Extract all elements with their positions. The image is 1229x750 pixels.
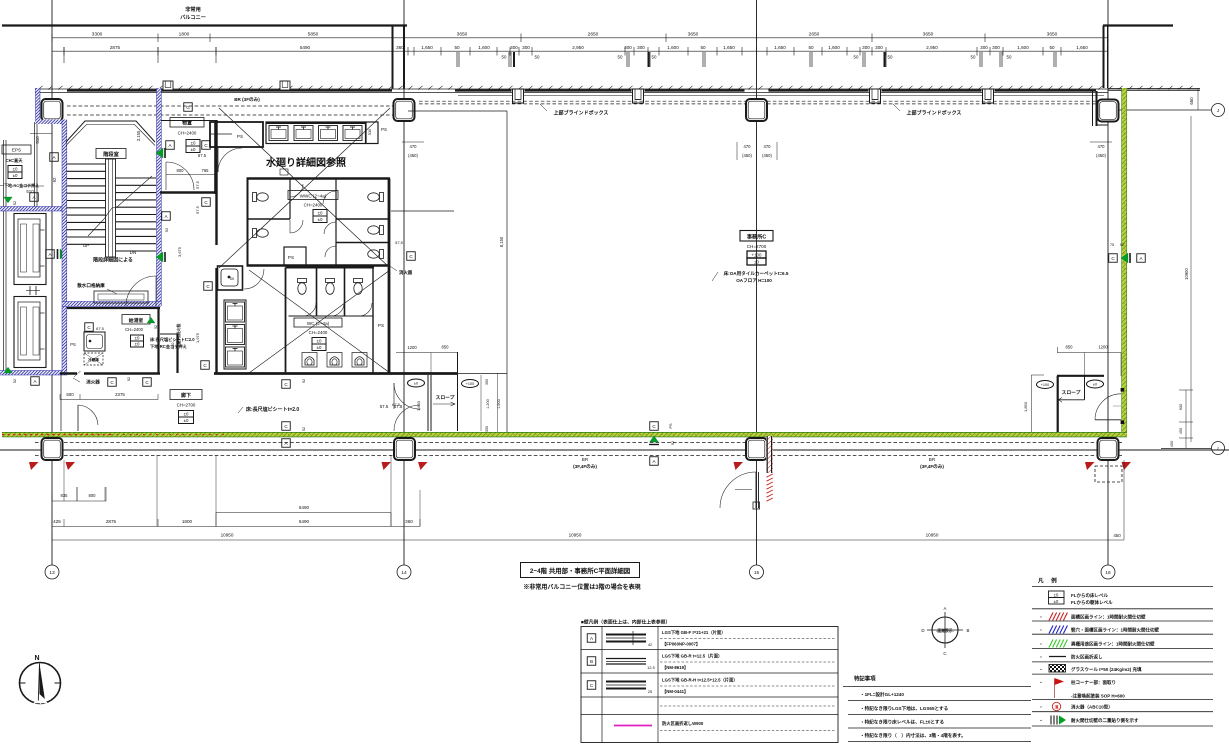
svg-text:(450): (450) — [742, 153, 752, 158]
svg-text:・: ・ — [1039, 655, 1044, 660]
svg-text:・特記なき限りLGS下地は、LGS65とする: ・特記なき限りLGS下地は、LGS65とする — [860, 705, 949, 712]
svg-text:50: 50 — [971, 55, 976, 60]
svg-text:+100: +100 — [466, 382, 475, 386]
svg-text:57.5: 57.5 — [195, 180, 200, 189]
svg-text:LGS下地 GB-F t=21+21（片面）: LGS下地 GB-F t=21+21（片面） — [662, 629, 726, 636]
svg-text:上部ブラインドボックス: 上部ブラインドボックス — [554, 110, 609, 117]
svg-text:92: 92 — [52, 177, 57, 182]
svg-text:+100: +100 — [1041, 383, 1050, 387]
svg-text:±0: ±0 — [135, 335, 140, 340]
svg-text:75: 75 — [1110, 243, 1114, 247]
svg-text:B: B — [590, 659, 593, 664]
svg-text:425: 425 — [53, 519, 61, 524]
svg-text:92: 92 — [302, 379, 306, 383]
svg-text:異種用途区画ライン：1時間耐火間仕切壁: 異種用途区画ライン：1時間耐火間仕切壁 — [1071, 641, 1155, 648]
svg-text:450: 450 — [1169, 440, 1174, 447]
svg-text:・特記なき限り床レベルは、FL±0とする: ・特記なき限り床レベルは、FL±0とする — [860, 719, 944, 726]
svg-text:350: 350 — [485, 379, 489, 385]
svg-text:-注意喚起塗装 SOP H=600: -注意喚起塗装 SOP H=600 — [1071, 693, 1125, 700]
svg-text:5490: 5490 — [299, 519, 310, 524]
svg-text:±0: ±0 — [317, 345, 322, 350]
svg-text:散水口格納庫: 散水口格納庫 — [77, 282, 105, 289]
svg-text:事務所C: 事務所C — [747, 232, 767, 240]
svg-text:25: 25 — [648, 690, 652, 694]
svg-text:±0: ±0 — [414, 382, 418, 386]
svg-text:・: ・ — [1039, 615, 1044, 620]
svg-text:SK: SK — [230, 277, 235, 281]
svg-text:バルコニー: バルコニー — [180, 14, 206, 21]
svg-text:1,600: 1,600 — [667, 45, 679, 50]
svg-text:-面開表示-: -面開表示- — [936, 628, 954, 633]
svg-text:DN: DN — [130, 250, 137, 255]
svg-text:下地:RC金コテ押え: 下地:RC金コテ押え — [150, 343, 187, 350]
svg-text:竪穴・面積区画ライン：1時間耐火間仕切壁: 竪穴・面積区画ライン：1時間耐火間仕切壁 — [1071, 627, 1160, 634]
svg-text:PS: PS — [669, 423, 673, 429]
svg-text:1,650: 1,650 — [421, 45, 433, 50]
svg-text:800: 800 — [89, 493, 97, 498]
svg-text:1800: 1800 — [179, 32, 190, 38]
svg-text:±0: ±0 — [317, 338, 322, 343]
svg-text:5490: 5490 — [299, 505, 310, 510]
svg-text:CH=2400: CH=2400 — [125, 327, 143, 332]
svg-text:300: 300 — [980, 45, 988, 50]
svg-text:±0: ±0 — [1093, 383, 1097, 387]
svg-text:消火器（ABC10型）: 消火器（ABC10型） — [1071, 704, 1113, 711]
svg-text:300: 300 — [875, 45, 883, 50]
svg-text:A: A — [944, 606, 947, 611]
svg-text:BR: BR — [929, 457, 936, 462]
svg-text:・1FL=設計GL+1240: ・1FL=設計GL+1240 — [860, 691, 904, 698]
svg-text:300: 300 — [510, 45, 518, 50]
svg-text:50: 50 — [652, 55, 657, 60]
svg-text:C: C — [943, 651, 946, 656]
svg-text:360: 360 — [396, 45, 404, 50]
svg-text:・: ・ — [1039, 680, 1044, 685]
svg-text:・: ・ — [1039, 642, 1044, 647]
svg-text:PS: PS — [378, 323, 384, 328]
svg-text:10950: 10950 — [221, 533, 234, 538]
svg-text:N: N — [34, 655, 39, 662]
svg-text:50: 50 — [1049, 45, 1055, 50]
svg-text:1,650: 1,650 — [723, 45, 735, 50]
svg-text:13: 13 — [49, 570, 55, 576]
svg-text:+100: +100 — [752, 253, 762, 258]
svg-text:床:長尺塩ビシートt=2.0: 床:長尺塩ビシートt=2.0 — [246, 406, 299, 413]
svg-text:50: 50 — [535, 55, 540, 60]
svg-text:1,650: 1,650 — [774, 45, 786, 50]
svg-text:CH=2400: CH=2400 — [309, 330, 328, 335]
svg-text:消火器: 消火器 — [86, 379, 100, 386]
svg-text:300: 300 — [862, 45, 870, 50]
svg-text:1200: 1200 — [1098, 345, 1108, 350]
svg-text:1,600: 1,600 — [1017, 45, 1029, 50]
svg-text:・: ・ — [1039, 705, 1044, 710]
svg-text:57.5: 57.5 — [195, 205, 200, 214]
svg-text:±0: ±0 — [1054, 599, 1059, 604]
svg-text:42: 42 — [648, 643, 652, 647]
svg-text:57.5: 57.5 — [380, 404, 389, 409]
svg-text:50: 50 — [502, 55, 507, 60]
svg-text:450: 450 — [1178, 427, 1183, 434]
svg-text:650: 650 — [1189, 97, 1194, 105]
svg-text:1,600: 1,600 — [478, 45, 490, 50]
svg-text:1,850: 1,850 — [1023, 401, 1028, 412]
svg-text:±0: ±0 — [191, 147, 196, 152]
svg-text:1200: 1200 — [407, 345, 417, 350]
svg-text:300: 300 — [992, 45, 1000, 50]
svg-text:1800: 1800 — [182, 519, 193, 524]
svg-text:(450): (450) — [408, 153, 418, 158]
svg-text:835: 835 — [61, 493, 69, 498]
svg-text:300: 300 — [637, 45, 645, 50]
svg-text:510: 510 — [26, 189, 34, 194]
svg-text:3650: 3650 — [1047, 32, 1058, 38]
svg-text:D: D — [921, 628, 924, 633]
svg-text:床:長尺塩ビシートt=2.0: 床:長尺塩ビシートt=2.0 — [150, 336, 195, 343]
svg-text:PS: PS — [70, 342, 76, 347]
svg-text:給湯室: 給湯室 — [129, 317, 144, 324]
svg-text:±0: ±0 — [318, 210, 323, 215]
svg-text:765: 765 — [202, 168, 210, 173]
svg-text:階段詳細図による: 階段詳細図による — [93, 257, 133, 264]
svg-text:50: 50 — [700, 45, 706, 50]
svg-text:67.5: 67.5 — [198, 153, 207, 158]
svg-text:FLからの床レベル: FLからの床レベル — [1071, 592, 1108, 599]
svg-text:2~4階 共用部・事務所C平面詳細図: 2~4階 共用部・事務所C平面詳細図 — [530, 566, 630, 575]
svg-text:50: 50 — [888, 55, 893, 60]
svg-text:10950: 10950 — [926, 533, 939, 538]
svg-text:52: 52 — [13, 379, 17, 383]
svg-text:±0: ±0 — [191, 140, 196, 145]
svg-text:■壁凡例（表面仕上は、内部仕上表参照）: ■壁凡例（表面仕上は、内部仕上表参照） — [581, 619, 670, 626]
svg-text:12.5: 12.5 — [647, 666, 654, 670]
svg-text:470: 470 — [1098, 144, 1106, 149]
svg-text:LGS下地 GB-R-H t=12.5+12.5（片面）: LGS下地 GB-R-H t=12.5+12.5（片面） — [662, 677, 738, 684]
svg-text:530: 530 — [368, 129, 372, 135]
svg-text:50: 50 — [618, 55, 623, 60]
svg-text:消火器: 消火器 — [399, 269, 413, 276]
svg-text:・特記なき限り（ ）内寸法は、3階・4階を表す。: ・特記なき限り（ ）内寸法は、3階・4階を表す。 — [860, 732, 966, 739]
svg-text:5850: 5850 — [308, 32, 319, 38]
svg-text:柱コーナー部：面取り: 柱コーナー部：面取り — [1071, 679, 1116, 686]
svg-text:PS: PS — [381, 127, 387, 132]
svg-text:廊下: 廊下 — [181, 392, 191, 399]
svg-text:2,950: 2,950 — [572, 45, 584, 50]
svg-text:3,675: 3,675 — [177, 246, 182, 257]
svg-text:800: 800 — [177, 168, 185, 173]
svg-text:±0: ±0 — [13, 173, 18, 178]
svg-text:グラスウール t=50 (24Kg/m2) 充填: グラスウール t=50 (24Kg/m2) 充填 — [1071, 666, 1142, 673]
svg-text:2650: 2650 — [588, 32, 599, 38]
svg-text:・: ・ — [1039, 718, 1044, 723]
svg-text:16: 16 — [1105, 570, 1111, 576]
svg-text:±0: ±0 — [13, 166, 18, 171]
svg-text:510: 510 — [35, 136, 40, 144]
svg-text:92: 92 — [671, 441, 675, 445]
svg-text:一下地:RC金コテ押え: 一下地:RC金コテ押え — [0, 182, 39, 188]
svg-text:防火区画折返しW900: 防火区画折返しW900 — [662, 720, 704, 727]
svg-text:92: 92 — [164, 227, 169, 232]
svg-text:UP: UP — [83, 243, 89, 248]
svg-text:※非常用バルコニー位置は3階の場合を表現: ※非常用バルコニー位置は3階の場合を表現 — [523, 583, 640, 591]
svg-text:±0: ±0 — [184, 411, 189, 416]
svg-text:450: 450 — [1113, 533, 1121, 538]
svg-text:92: 92 — [127, 377, 131, 381]
svg-text:±0: ±0 — [135, 341, 140, 346]
svg-text:・: ・ — [1039, 667, 1044, 672]
svg-text:92: 92 — [1120, 243, 1124, 247]
svg-text:EPS: EPS — [12, 148, 21, 153]
svg-text:CH=2700: CH=2700 — [177, 403, 196, 408]
svg-text:凡 例: 凡 例 — [1038, 577, 1060, 585]
svg-text:上部ブラインドボックス: 上部ブラインドボックス — [907, 110, 962, 117]
svg-text:2,950: 2,950 — [926, 45, 938, 50]
svg-text:10900: 10900 — [1184, 268, 1189, 280]
svg-text:2650: 2650 — [809, 32, 820, 38]
svg-text:B: B — [967, 628, 970, 633]
svg-text:CH=直天: CH=直天 — [6, 157, 24, 164]
svg-text:67.5: 67.5 — [392, 402, 401, 407]
svg-text:50: 50 — [454, 45, 460, 50]
svg-text:(450): (450) — [1096, 153, 1106, 158]
svg-text:1,600: 1,600 — [828, 45, 840, 50]
svg-text:14: 14 — [401, 570, 407, 576]
svg-text:PS: PS — [237, 134, 243, 139]
svg-text:物置: 物置 — [182, 120, 192, 127]
svg-text:5490: 5490 — [300, 45, 311, 50]
svg-text:LGS下地 GB-R t=12.5（片面）: LGS下地 GB-R t=12.5（片面） — [662, 653, 722, 660]
svg-text:±0: ±0 — [754, 260, 759, 265]
svg-text:(450): (450) — [762, 153, 772, 158]
svg-text:PS: PS — [288, 255, 294, 260]
svg-text:50: 50 — [854, 55, 859, 60]
svg-text:CH=2400: CH=2400 — [178, 131, 197, 136]
svg-text:930: 930 — [1178, 403, 1183, 410]
svg-text:15: 15 — [754, 570, 760, 576]
svg-text:2875: 2875 — [106, 519, 117, 524]
svg-text:350: 350 — [485, 426, 489, 432]
svg-text:±0: ±0 — [184, 418, 189, 423]
svg-text:500: 500 — [66, 392, 74, 397]
svg-text:470: 470 — [410, 144, 418, 149]
svg-text:CH=2400: CH=2400 — [304, 203, 323, 208]
svg-text:300: 300 — [624, 45, 632, 50]
svg-text:300: 300 — [522, 45, 530, 50]
svg-text:3650: 3650 — [457, 32, 468, 38]
svg-text:3650: 3650 — [688, 32, 699, 38]
svg-text:G: G — [186, 105, 190, 110]
svg-text:I: I — [1217, 446, 1218, 452]
svg-text:非常用: 非常用 — [185, 5, 201, 13]
svg-text:WWC (2~4a): WWC (2~4a) — [300, 193, 327, 198]
svg-text:2375: 2375 — [115, 392, 125, 397]
svg-text:・: ・ — [1039, 628, 1044, 633]
svg-text:3650: 3650 — [923, 32, 934, 38]
svg-text:470: 470 — [744, 144, 752, 149]
svg-text:2875: 2875 — [110, 45, 121, 50]
svg-text:特記事項: 特記事項 — [854, 675, 876, 683]
svg-text:850: 850 — [442, 345, 450, 350]
svg-text:3,150: 3,150 — [136, 130, 141, 141]
svg-text:1,975: 1,975 — [195, 332, 200, 343]
svg-text:床:OA用タイルカーペットt=6.5: 床:OA用タイルカーペットt=6.5 — [724, 270, 789, 277]
svg-text:57,5: 57,5 — [395, 240, 404, 245]
svg-text:階段室: 階段室 — [103, 150, 119, 158]
svg-text:50: 50 — [1007, 55, 1012, 60]
svg-text:850: 850 — [1066, 345, 1074, 350]
svg-text:3300: 3300 — [92, 32, 103, 38]
svg-text:470: 470 — [764, 144, 772, 149]
svg-text:52: 52 — [302, 427, 306, 431]
svg-text:±0: ±0 — [1054, 592, 1059, 597]
svg-text:BR: BR — [582, 457, 589, 462]
svg-text:67.5: 67.5 — [96, 326, 105, 331]
svg-text:1,650: 1,650 — [1076, 45, 1088, 50]
svg-text:360: 360 — [405, 519, 413, 524]
svg-text:52: 52 — [154, 325, 158, 329]
svg-text:50: 50 — [808, 45, 814, 50]
svg-text:52: 52 — [13, 201, 17, 205]
svg-text:防火区画折返し: 防火区画折返し — [1071, 654, 1103, 661]
svg-text:10950: 10950 — [569, 533, 582, 538]
svg-text:消: 消 — [1055, 704, 1059, 709]
svg-text:スロープ: スロープ — [436, 394, 455, 401]
svg-text:WC (2~4a): WC (2~4a) — [307, 321, 330, 326]
svg-text:CH=2700: CH=2700 — [747, 244, 767, 249]
svg-text:面積区画ライン：1時間耐火間仕切壁: 面積区画ライン：1時間耐火間仕切壁 — [1071, 614, 1146, 621]
svg-text:±0: ±0 — [318, 217, 323, 222]
svg-text:FLからの躯体レベル: FLからの躯体レベル — [1071, 599, 1113, 606]
svg-text:1,850: 1,850 — [416, 400, 421, 411]
svg-text:スロープ: スロープ — [1062, 389, 1081, 396]
svg-text:1,200: 1,200 — [486, 399, 490, 409]
svg-text:耐火間仕切壁の二重貼り側を示す: 耐火間仕切壁の二重貼り側を示す — [1071, 717, 1139, 724]
svg-text:8,150: 8,150 — [499, 236, 504, 247]
